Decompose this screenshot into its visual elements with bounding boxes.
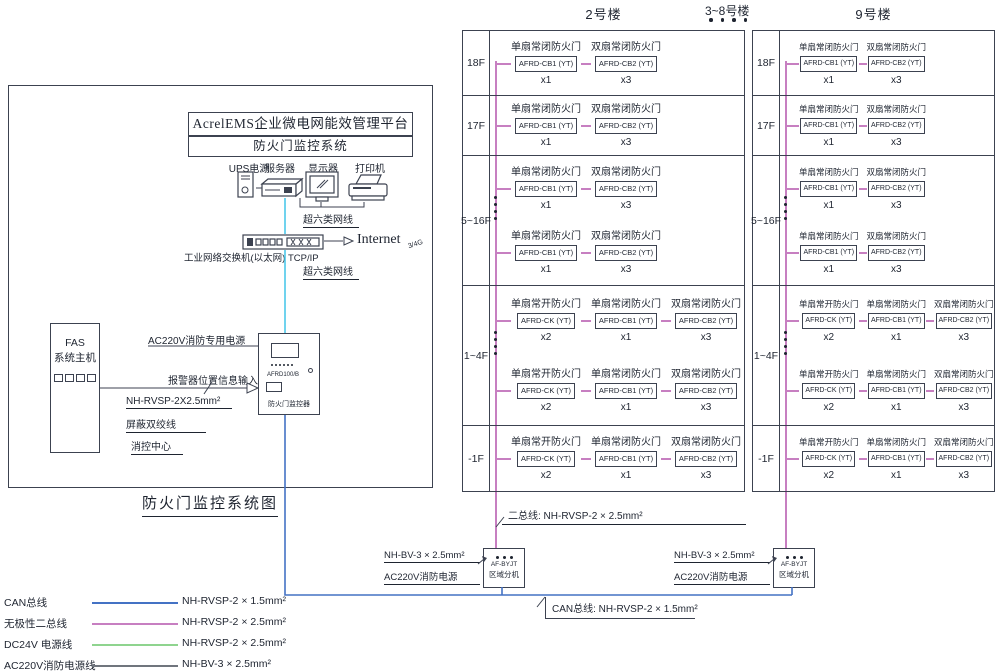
legend-wire-spec: NH-RVSP-2 × 2.5mm² [182, 637, 286, 649]
device-model-box: AFRD-CK (YT) [517, 451, 575, 467]
device: 双扇常闭防火门AFRD-CB2 (YT)x3 [671, 298, 741, 343]
device: 单扇常开防火门AFRD-CK (YT)x2 [799, 298, 859, 343]
floor-row: -1F单扇常开防火门AFRD-CK (YT)x2单扇常闭防火门AFRD-CB1 … [753, 426, 994, 491]
dot [494, 331, 497, 334]
bus-connector-line [581, 188, 591, 190]
device-group: 单扇常闭防火门AFRD-CB1 (YT)x1双扇常闭防火门AFRD-CB2 (Y… [787, 41, 994, 86]
legend-row: AC220V消防电源线NH-BV-3 × 2.5mm² [2, 655, 292, 671]
bus-connector-line [926, 320, 934, 322]
device-type-label: 双扇常闭防火门 [934, 436, 994, 449]
device: 单扇常开防火门AFRD-CK (YT)x2 [799, 368, 859, 413]
device-qty: x3 [959, 470, 970, 481]
device-qty: x3 [701, 332, 712, 343]
device-type-label: 单扇常闭防火门 [799, 103, 859, 116]
device-type-label: 单扇常闭防火门 [591, 368, 661, 381]
server-icon [258, 176, 304, 200]
legend-wire-spec: NH-RVSP-2 × 1.5mm² [182, 595, 286, 607]
area-extension-box: AF-BYJT区域分机 [483, 548, 525, 588]
legend-wire-line [92, 665, 178, 667]
device-type-label: 双扇常闭防火门 [671, 368, 741, 381]
bus-connector-line [581, 320, 591, 322]
device: 双扇常闭防火门AFRD-CB2 (YT)x3 [934, 436, 994, 481]
device-group: 单扇常开防火门AFRD-CK (YT)x2单扇常闭防火门AFRD-CB1 (YT… [497, 368, 744, 413]
device-qty: x2 [823, 470, 834, 481]
device-model-box: AFRD-CB2 (YT) [868, 181, 925, 197]
device-qty: x2 [541, 402, 552, 413]
device-model-box: AFRD-CB1 (YT) [868, 383, 925, 399]
device-qty: x3 [701, 470, 712, 481]
device-group: 单扇常闭防火门AFRD-CB1 (YT)x1双扇常闭防火门AFRD-CB2 (Y… [787, 230, 994, 275]
device-type-label: 单扇常闭防火门 [867, 368, 927, 381]
bus-branch-line [787, 252, 799, 254]
device-type-label: 双扇常闭防火门 [591, 41, 661, 54]
bus-connector-line [859, 390, 867, 392]
device-qty: x1 [541, 264, 552, 275]
floor-label: 18F [463, 31, 490, 95]
extension-indicator-dots [786, 556, 803, 559]
device-type-label: 单扇常闭防火门 [591, 298, 661, 311]
device-type-label: 单扇常开防火门 [799, 436, 859, 449]
device: 双扇常闭防火门AFRD-CB2 (YT)x3 [867, 230, 927, 275]
device: 单扇常闭防火门AFRD-CB1 (YT)x1 [511, 41, 581, 86]
bus-connector-line [581, 63, 591, 65]
bus-branch-line [497, 63, 511, 65]
bus-branch-line [787, 390, 799, 392]
floor-row: 18F单扇常闭防火门AFRD-CB1 (YT)x1双扇常闭防火门AFRD-CB2… [753, 31, 994, 96]
legend-wire-line [92, 644, 178, 646]
floor-content: 单扇常开防火门AFRD-CK (YT)x2单扇常闭防火门AFRD-CB1 (YT… [780, 286, 994, 425]
device: 双扇常闭防火门AFRD-CB2 (YT)x3 [591, 103, 661, 148]
display-icon [303, 170, 341, 204]
device-model-box: AFRD-CB1 (YT) [800, 245, 857, 261]
device: 单扇常开防火门AFRD-CK (YT)x2 [511, 436, 581, 481]
device-qty: x2 [823, 402, 834, 413]
device: 单扇常闭防火门AFRD-CB1 (YT)x1 [799, 166, 859, 211]
device-group: 单扇常开防火门AFRD-CK (YT)x2单扇常闭防火门AFRD-CB1 (YT… [497, 436, 744, 481]
switch-label: 工业网络交换机(以太网) TCP/IP [184, 250, 319, 264]
area-extension-box: AF-BYJT区域分机 [773, 548, 815, 588]
device-type-label: 双扇常闭防火门 [591, 230, 661, 243]
bus-connector-line [581, 458, 591, 460]
bus-connector-line [859, 458, 867, 460]
legend-wire-spec: NH-BV-3 × 2.5mm² [182, 658, 271, 670]
bus-connector-line [926, 458, 934, 460]
monitor-led [308, 368, 313, 373]
device-model-box: AFRD-CB1 (YT) [800, 56, 857, 72]
device: 双扇常闭防火门AFRD-CB2 (YT)x3 [867, 41, 927, 86]
device-qty: x3 [621, 200, 632, 211]
extension-indicator-dots [496, 556, 513, 559]
floor-content: 单扇常闭防火门AFRD-CB1 (YT)x1双扇常闭防火门AFRD-CB2 (Y… [490, 156, 744, 285]
fas-indicator-squares [51, 374, 99, 382]
device-model-box: AFRD-CB1 (YT) [595, 383, 657, 399]
device: 单扇常开防火门AFRD-CK (YT)x2 [511, 298, 581, 343]
device: 单扇常闭防火门AFRD-CB1 (YT)x1 [511, 166, 581, 211]
device-model-box: AFRD-CB1 (YT) [595, 313, 657, 329]
device-group: 单扇常闭防火门AFRD-CB1 (YT)x1双扇常闭防火门AFRD-CB2 (Y… [787, 166, 994, 211]
dot [510, 556, 513, 559]
device-model-box: AFRD-CB2 (YT) [675, 383, 737, 399]
power-spec-label: NH-BV-3 × 2.5mm² [674, 550, 770, 563]
device: 双扇常闭防火门AFRD-CB2 (YT)x3 [591, 41, 661, 86]
between-buildings-label: 3~8号楼 [705, 2, 749, 19]
device-type-label: 单扇常开防火门 [799, 368, 859, 381]
monitor-screen [271, 343, 299, 358]
monitor-model: AFRD100/B [267, 372, 299, 378]
fas-host-box: FAS 系统主机 [50, 323, 100, 453]
dot [784, 338, 787, 341]
bus-connector-line [581, 252, 591, 254]
device-model-box: AFRD-CB2 (YT) [675, 313, 737, 329]
legend-wire-line [92, 623, 178, 625]
device-type-label: 双扇常闭防火门 [934, 368, 994, 381]
device-type-label: 双扇常闭防火门 [867, 166, 927, 179]
dot [494, 203, 497, 206]
floor-label: 1~4F [753, 286, 780, 425]
floor-label: 17F [753, 96, 780, 155]
device-model-box: AFRD-CB2 (YT) [595, 245, 657, 261]
floor-row: 17F单扇常闭防火门AFRD-CB1 (YT)x1双扇常闭防火门AFRD-CB2… [753, 96, 994, 156]
power-name-label: AC220V消防电源 [674, 569, 770, 585]
floor-row: 1~4F单扇常开防火门AFRD-CK (YT)x2单扇常闭防火门AFRD-CB1… [463, 286, 744, 426]
device-group: 单扇常开防火门AFRD-CK (YT)x2单扇常闭防火门AFRD-CB1 (YT… [497, 298, 744, 343]
system-title-box: 防火门监控系统 [188, 136, 413, 157]
device-model-box: AFRD-CB2 (YT) [936, 313, 993, 329]
control-center-label: 消控中心 [131, 438, 183, 455]
device: 单扇常闭防火门AFRD-CB1 (YT)x1 [591, 436, 661, 481]
device-model-box: AFRD-CB1 (YT) [800, 118, 857, 134]
dot [494, 352, 497, 355]
wire-legend: CAN总线NH-RVSP-2 × 1.5mm²无极性二总线NH-RVSP-2 ×… [2, 592, 292, 671]
fas-square [65, 374, 74, 382]
monitor-name: 防火门监控器 [259, 399, 319, 409]
floor-label: 17F [463, 96, 490, 155]
device-type-label: 单扇常闭防火门 [867, 436, 927, 449]
fas-square [87, 374, 96, 382]
device-type-label: 单扇常闭防火门 [511, 41, 581, 54]
dot [784, 210, 787, 213]
device-qty: x1 [823, 75, 834, 86]
device-qty: x3 [891, 264, 902, 275]
floor-label: 1~4F [463, 286, 490, 425]
legend-row: CAN总线NH-RVSP-2 × 1.5mm² [2, 592, 292, 613]
fas-square [76, 374, 85, 382]
bus-branch-line [497, 320, 511, 322]
dot [496, 556, 499, 559]
device-model-box: AFRD-CB2 (YT) [936, 451, 993, 467]
device-type-label: 单扇常闭防火门 [799, 166, 859, 179]
device: 单扇常闭防火门AFRD-CB1 (YT)x1 [867, 436, 927, 481]
bus-connector-line [581, 125, 591, 127]
fas-square [54, 374, 63, 382]
bus-connector-line [859, 63, 867, 65]
bus-connector-line [661, 390, 671, 392]
bus-branch-line [787, 188, 799, 190]
ethernet-switch-icon [242, 233, 326, 251]
device-type-label: 单扇常开防火门 [511, 436, 581, 449]
floor-content: 单扇常闭防火门AFRD-CB1 (YT)x1双扇常闭防火门AFRD-CB2 (Y… [780, 31, 994, 95]
bus-connector-line [661, 458, 671, 460]
device-model-box: AFRD-CK (YT) [517, 383, 575, 399]
device-type-label: 单扇常闭防火门 [511, 103, 581, 116]
device-qty: x3 [891, 137, 902, 148]
device-model-box: AFRD-CB1 (YT) [515, 118, 577, 134]
dot [494, 345, 497, 348]
legend-wire-name: DC24V 电源线 [4, 637, 72, 652]
device-model-box: AFRD-CB2 (YT) [868, 245, 925, 261]
device-group: 单扇常闭防火门AFRD-CB1 (YT)x1双扇常闭防火门AFRD-CB2 (Y… [497, 41, 744, 86]
bus-connector-line [661, 320, 671, 322]
cat6-label-upper: 超六类网线 [303, 211, 359, 228]
device: 双扇常闭防火门AFRD-CB2 (YT)x3 [671, 436, 741, 481]
floor-row: 5~16F单扇常闭防火门AFRD-CB1 (YT)x1双扇常闭防火门AFRD-C… [753, 156, 994, 286]
dot [800, 556, 803, 559]
device-model-box: AFRD-CB2 (YT) [595, 118, 657, 134]
device-qty: x1 [891, 470, 902, 481]
legend-wire-name: 无极性二总线 [4, 616, 67, 631]
fas-line2: 系统主机 [51, 351, 99, 366]
bus-branch-line [787, 458, 799, 460]
bus-connector-line [859, 188, 867, 190]
device-qty: x3 [891, 75, 902, 86]
dot [494, 196, 497, 199]
extension-name: 区域分机 [489, 569, 519, 580]
device-type-label: 双扇常闭防火门 [671, 436, 741, 449]
device-model-box: AFRD-CK (YT) [517, 313, 575, 329]
legend-wire-line [92, 602, 178, 604]
bus-branch-line [497, 390, 511, 392]
device-qty: x1 [621, 470, 632, 481]
device-type-label: 单扇常开防火门 [511, 368, 581, 381]
floor-row: 5~16F单扇常闭防火门AFRD-CB1 (YT)x1双扇常闭防火门AFRD-C… [463, 156, 744, 286]
dot [784, 345, 787, 348]
platform-title: AcrelEMS企业微电网能效管理平台 [193, 116, 409, 131]
device: 双扇常闭防火门AFRD-CB2 (YT)x3 [591, 230, 661, 275]
device-group: 单扇常闭防火门AFRD-CB1 (YT)x1双扇常闭防火门AFRD-CB2 (Y… [497, 230, 744, 275]
extension-name: 区域分机 [779, 569, 809, 580]
ellipsis-dots [494, 331, 497, 355]
floor-label: 18F [753, 31, 780, 95]
device: 单扇常闭防火门AFRD-CB1 (YT)x1 [511, 103, 581, 148]
device-group: 单扇常开防火门AFRD-CK (YT)x2单扇常闭防火门AFRD-CB1 (YT… [787, 298, 994, 343]
device-model-box: AFRD-CB1 (YT) [515, 245, 577, 261]
device: 双扇常闭防火门AFRD-CB2 (YT)x3 [867, 103, 927, 148]
between-buildings-dots [709, 18, 747, 22]
dot [784, 217, 787, 220]
device-qty: x1 [541, 200, 552, 211]
device-qty: x1 [541, 137, 552, 148]
building-name: 9号楼 [844, 4, 904, 23]
device-qty: x1 [541, 75, 552, 86]
server-label: 服务器 [260, 160, 300, 175]
legend-wire-spec: NH-RVSP-2 × 2.5mm² [182, 616, 286, 628]
can-bus-label: CAN总线: NH-RVSP-2 × 1.5mm² [545, 597, 695, 619]
device: 双扇常闭防火门AFRD-CB2 (YT)x3 [934, 368, 994, 413]
device-model-box: AFRD-CB2 (YT) [868, 56, 925, 72]
bus-connector-line [926, 390, 934, 392]
device-qty: x3 [959, 402, 970, 413]
device-type-label: 双扇常闭防火门 [671, 298, 741, 311]
device: 单扇常闭防火门AFRD-CB1 (YT)x1 [799, 230, 859, 275]
device-type-label: 单扇常闭防火门 [799, 41, 859, 54]
device-qty: x1 [891, 402, 902, 413]
device-qty: x3 [959, 332, 970, 343]
device-type-label: 双扇常闭防火门 [591, 166, 661, 179]
device-qty: x2 [823, 332, 834, 343]
device-qty: x2 [541, 332, 552, 343]
dot [786, 556, 789, 559]
system-title: 防火门监控系统 [253, 139, 348, 153]
legend-row: 无极性二总线NH-RVSP-2 × 2.5mm² [2, 613, 292, 634]
extension-model: AF-BYJT [781, 561, 807, 568]
diagram-title: 防火门监控系统图 [142, 492, 278, 517]
floor-label: 5~16F [463, 156, 490, 285]
floor-row: -1F单扇常开防火门AFRD-CK (YT)x2单扇常闭防火门AFRD-CB1 … [463, 426, 744, 491]
two-bus-label: 二总线: NH-RVSP-2 × 2.5mm² [502, 507, 746, 525]
device-group: 单扇常闭防火门AFRD-CB1 (YT)x1双扇常闭防火门AFRD-CB2 (Y… [787, 103, 994, 148]
device: 双扇常闭防火门AFRD-CB2 (YT)x3 [934, 298, 994, 343]
device-model-box: AFRD-CB1 (YT) [868, 451, 925, 467]
device-type-label: 双扇常闭防火门 [867, 103, 927, 116]
bus-branch-line [497, 188, 511, 190]
device-model-box: AFRD-CB2 (YT) [595, 56, 657, 72]
device-model-box: AFRD-CK (YT) [802, 313, 855, 329]
device-model-box: AFRD-CB2 (YT) [595, 181, 657, 197]
ellipsis-dots [784, 331, 787, 355]
floor-content: 单扇常闭防火门AFRD-CB1 (YT)x1双扇常闭防火门AFRD-CB2 (Y… [780, 96, 994, 155]
fas-line1: FAS [51, 336, 99, 351]
device: 双扇常闭防火门AFRD-CB2 (YT)x3 [867, 166, 927, 211]
floor-content: 单扇常闭防火门AFRD-CB1 (YT)x1双扇常闭防火门AFRD-CB2 (Y… [780, 156, 994, 285]
device-type-label: 单扇常开防火门 [799, 298, 859, 311]
shield-name-label: 屏蔽双绞线 [126, 416, 206, 433]
device-type-label: 双扇常闭防火门 [934, 298, 994, 311]
device: 双扇常闭防火门AFRD-CB2 (YT)x3 [671, 368, 741, 413]
device-model-box: AFRD-CB1 (YT) [800, 181, 857, 197]
power-spec-label: NH-BV-3 × 2.5mm² [384, 550, 480, 563]
device-qty: x1 [823, 264, 834, 275]
printer-icon [344, 172, 394, 204]
device-qty: x1 [823, 137, 834, 148]
dot [494, 210, 497, 213]
dot [784, 331, 787, 334]
device: 单扇常开防火门AFRD-CK (YT)x2 [799, 436, 859, 481]
device-type-label: 单扇常闭防火门 [799, 230, 859, 243]
device-model-box: AFRD-CB2 (YT) [936, 383, 993, 399]
device-qty: x2 [541, 470, 552, 481]
device-qty: x1 [621, 402, 632, 413]
device-qty: x3 [891, 200, 902, 211]
legend-row: DC24V 电源线NH-RVSP-2 × 2.5mm² [2, 634, 292, 655]
dot [784, 203, 787, 206]
dot [494, 217, 497, 220]
device-model-box: AFRD-CB1 (YT) [868, 313, 925, 329]
device-group: 单扇常开防火门AFRD-CK (YT)x2单扇常闭防火门AFRD-CB1 (YT… [787, 368, 994, 413]
device: 单扇常闭防火门AFRD-CB1 (YT)x1 [867, 298, 927, 343]
device-model-box: AFRD-CB1 (YT) [515, 181, 577, 197]
building-table: 18F单扇常闭防火门AFRD-CB1 (YT)x1双扇常闭防火门AFRD-CB2… [752, 30, 995, 492]
bus-connector-line [581, 390, 591, 392]
device-model-box: AFRD-CK (YT) [802, 383, 855, 399]
dot [784, 196, 787, 199]
bus-branch-line [787, 125, 799, 127]
dot [793, 556, 796, 559]
device-qty: x1 [891, 332, 902, 343]
device-group: 单扇常闭防火门AFRD-CB1 (YT)x1双扇常闭防火门AFRD-CB2 (Y… [497, 103, 744, 148]
floor-label: 5~16F [753, 156, 780, 285]
device-type-label: 单扇常开防火门 [511, 298, 581, 311]
floor-row: 17F单扇常闭防火门AFRD-CB1 (YT)x1双扇常闭防火门AFRD-CB2… [463, 96, 744, 156]
extension-model: AF-BYJT [491, 561, 517, 568]
device-model-box: AFRD-CB2 (YT) [675, 451, 737, 467]
bus-connector-line [859, 320, 867, 322]
alarm-input-label: 报警器位置信息输入 [168, 372, 258, 387]
device-type-label: 单扇常闭防火门 [511, 230, 581, 243]
power-name-label: AC220V消防电源 [384, 569, 480, 585]
bus-branch-line [787, 63, 799, 65]
ellipsis-dots [784, 196, 787, 220]
bus-branch-line [497, 458, 511, 460]
device: 单扇常闭防火门AFRD-CB1 (YT)x1 [799, 103, 859, 148]
device-type-label: 双扇常闭防火门 [591, 103, 661, 116]
ellipsis-dots [494, 196, 497, 220]
bus-branch-line [497, 125, 511, 127]
device-group: 单扇常开防火门AFRD-CK (YT)x2单扇常闭防火门AFRD-CB1 (YT… [787, 436, 994, 481]
device: 单扇常闭防火门AFRD-CB1 (YT)x1 [799, 41, 859, 86]
building-table: 18F单扇常闭防火门AFRD-CB1 (YT)x1双扇常闭防火门AFRD-CB2… [462, 30, 745, 492]
cat6-label-lower: 超六类网线 [303, 263, 359, 280]
device: 双扇常闭防火门AFRD-CB2 (YT)x3 [591, 166, 661, 211]
internet-label: Internet [357, 232, 401, 248]
shield-spec-label: NH-RVSP-2X2.5mm² [126, 396, 232, 409]
ac220-dedicated-label: AC220V消防专用电源 [148, 332, 245, 347]
device: 单扇常闭防火门AFRD-CB1 (YT)x1 [591, 368, 661, 413]
device-qty: x3 [701, 402, 712, 413]
monitor-keypad [266, 382, 282, 392]
device: 单扇常闭防火门AFRD-CB1 (YT)x1 [511, 230, 581, 275]
dot [503, 556, 506, 559]
device-type-label: 单扇常闭防火门 [511, 166, 581, 179]
device-qty: x3 [621, 264, 632, 275]
dot [784, 352, 787, 355]
fire-door-monitor-box: AFRD100/B 防火门监控器 [258, 333, 320, 415]
device-qty: x1 [823, 200, 834, 211]
monitor-dots [271, 364, 293, 366]
bus-branch-line [787, 320, 799, 322]
dot [494, 338, 497, 341]
device: 单扇常开防火门AFRD-CK (YT)x2 [511, 368, 581, 413]
platform-title-box: AcrelEMS企业微电网能效管理平台 [188, 112, 413, 136]
device-group: 单扇常闭防火门AFRD-CB1 (YT)x1双扇常闭防火门AFRD-CB2 (Y… [497, 166, 744, 211]
diagram-canvas: AcrelEMS企业微电网能效管理平台 防火门监控系统 UPS电源 服务器 显示… [0, 0, 1000, 671]
floor-content: 单扇常开防火门AFRD-CK (YT)x2单扇常闭防火门AFRD-CB1 (YT… [490, 286, 744, 425]
device-model-box: AFRD-CB1 (YT) [515, 56, 577, 72]
device-qty: x3 [621, 137, 632, 148]
device-model-box: AFRD-CK (YT) [802, 451, 855, 467]
floor-content: 单扇常开防火门AFRD-CK (YT)x2单扇常闭防火门AFRD-CB1 (YT… [780, 426, 994, 491]
device-type-label: 单扇常闭防火门 [591, 436, 661, 449]
building-name: 2号楼 [574, 4, 634, 23]
bus-connector-line [859, 125, 867, 127]
floor-row: 1~4F单扇常开防火门AFRD-CK (YT)x2单扇常闭防火门AFRD-CB1… [753, 286, 994, 426]
device: 单扇常闭防火门AFRD-CB1 (YT)x1 [591, 298, 661, 343]
ups-icon [234, 170, 258, 200]
floor-content: 单扇常闭防火门AFRD-CB1 (YT)x1双扇常闭防火门AFRD-CB2 (Y… [490, 96, 744, 155]
device-type-label: 双扇常闭防火门 [867, 230, 927, 243]
floor-label: -1F [753, 426, 780, 491]
device-model-box: AFRD-CB2 (YT) [868, 118, 925, 134]
device-qty: x3 [621, 75, 632, 86]
